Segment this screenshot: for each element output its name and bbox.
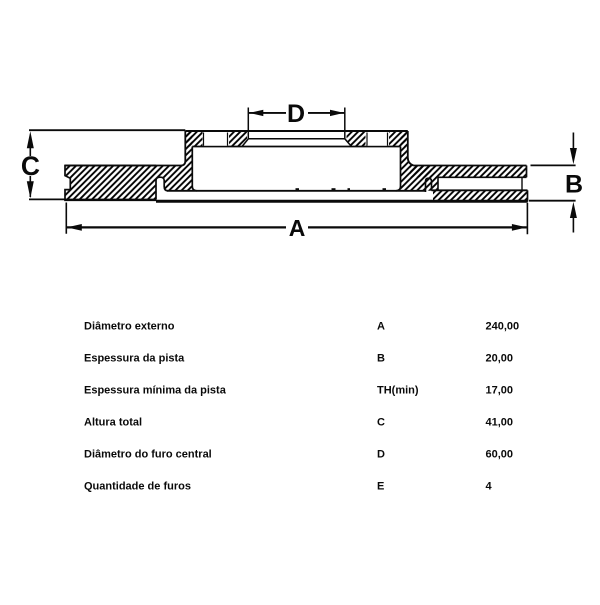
svg-text:Quantidade de furos: Quantidade de furos — [84, 481, 191, 493]
svg-text:Espessura mínima da pista: Espessura mínima da pista — [84, 385, 227, 397]
svg-text:C: C — [21, 151, 40, 181]
svg-text:B: B — [377, 353, 385, 365]
svg-text:D: D — [377, 449, 385, 461]
svg-text:E: E — [377, 481, 384, 493]
svg-text:Espessura da pista: Espessura da pista — [84, 353, 185, 365]
svg-text:17,00: 17,00 — [486, 385, 514, 397]
svg-text:C: C — [377, 417, 385, 429]
svg-text:A: A — [289, 215, 306, 241]
svg-text:20,00: 20,00 — [486, 353, 514, 365]
svg-text:Altura total: Altura total — [84, 417, 142, 429]
svg-text:240,00: 240,00 — [486, 321, 520, 333]
svg-text:D: D — [287, 100, 305, 128]
svg-text:TH(min): TH(min) — [377, 385, 419, 397]
svg-text:60,00: 60,00 — [486, 449, 514, 461]
svg-text:Diâmetro do furo central: Diâmetro do furo central — [84, 449, 212, 461]
svg-text:A: A — [377, 321, 385, 333]
svg-text:Diâmetro externo: Diâmetro externo — [84, 321, 175, 333]
svg-text:41,00: 41,00 — [486, 417, 514, 429]
svg-text:4: 4 — [486, 481, 493, 493]
svg-text:B: B — [565, 170, 583, 198]
